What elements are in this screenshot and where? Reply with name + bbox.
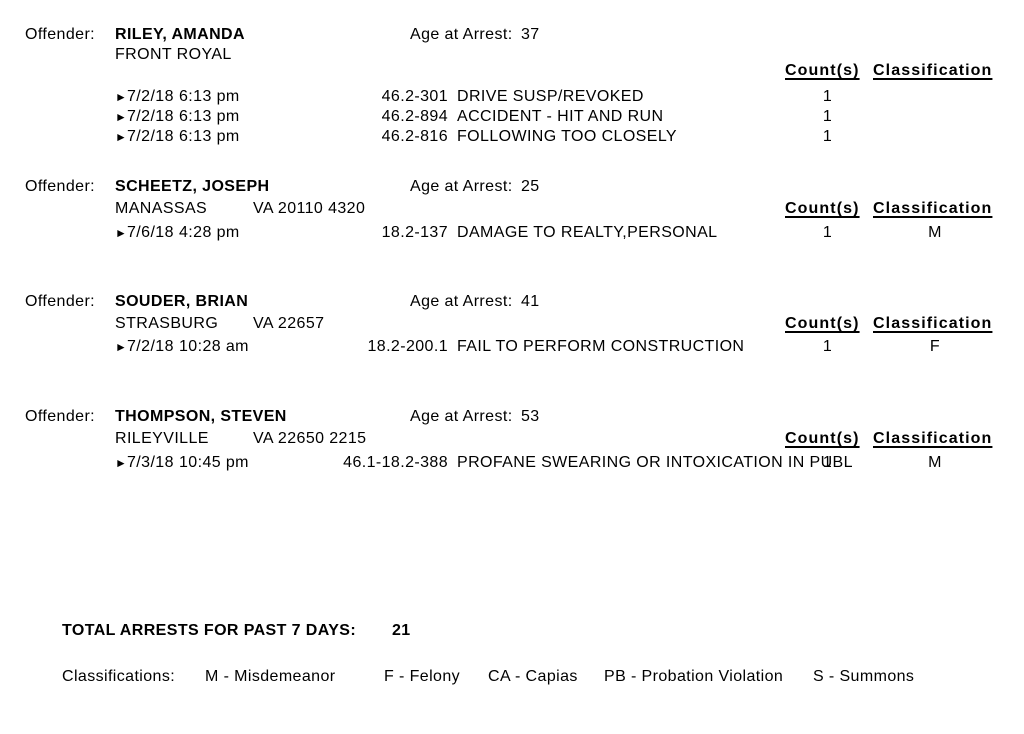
- charge-offense: PROFANE SWEARING OR INTOXICATION IN PUBL: [457, 453, 853, 473]
- offender-city: RILEYVILLE: [115, 429, 209, 449]
- age-at-arrest-label: Age at Arrest:: [410, 25, 513, 45]
- charge-classification: M: [906, 223, 964, 243]
- charge-time: 10:28 am: [179, 337, 249, 357]
- offender-line: Offender: RILEY, AMANDA Age at Arrest: 3…: [0, 25, 1024, 45]
- offender-line: Offender: SOUDER, BRIAN Age at Arrest: 4…: [0, 292, 1024, 312]
- charge-date: 7/2/18: [127, 87, 174, 107]
- charge-count: 1: [799, 107, 856, 127]
- charge-time: 4:28 pm: [179, 223, 240, 243]
- legend-item-felony: F - Felony: [384, 667, 460, 687]
- classification-column-header: Classification: [873, 199, 992, 219]
- offender-line: Offender: THOMPSON, STEVEN Age at Arrest…: [0, 407, 1024, 427]
- offender-state-zip: VA 22657: [253, 314, 324, 334]
- charge-row: ► 7/3/18 10:45 pm 46.1-18.2-388 PROFANE …: [0, 453, 1024, 473]
- charge-count: 1: [799, 453, 856, 473]
- charge-count: 1: [799, 87, 856, 107]
- charge-row: ► 7/2/18 10:28 am 18.2-200.1 FAIL TO PER…: [0, 337, 1024, 357]
- offender-state-zip: VA 22650 2215: [253, 429, 366, 449]
- age-at-arrest-value: 53: [521, 407, 540, 427]
- charge-code: 18.2-137: [300, 223, 448, 243]
- offender-label: Offender:: [25, 177, 95, 197]
- offender-city: MANASSAS: [115, 199, 207, 219]
- charge-code: 46.2-816: [300, 127, 448, 147]
- charge-date: 7/6/18: [127, 223, 174, 243]
- charge-count: 1: [799, 337, 856, 357]
- classification-column-header: Classification: [873, 61, 992, 81]
- classification-column-header: Classification: [873, 314, 992, 334]
- charge-code: 46.2-894: [300, 107, 448, 127]
- address-line: RILEYVILLE VA 22650 2215 Count(s) Classi…: [0, 429, 1024, 449]
- offender-name: RILEY, AMANDA: [115, 25, 245, 45]
- legend-item-probation-violation: PB - Probation Violation: [604, 667, 783, 687]
- offender-name: THOMPSON, STEVEN: [115, 407, 287, 427]
- offender-name: SOUDER, BRIAN: [115, 292, 248, 312]
- charge-bullet-icon: ►: [115, 337, 127, 357]
- legend-item-summons: S - Summons: [813, 667, 914, 687]
- counts-column-header: Count(s): [785, 199, 860, 219]
- charge-classification: F: [906, 337, 964, 357]
- offender-city: STRASBURG: [115, 314, 218, 334]
- charge-offense: DAMAGE TO REALTY,PERSONAL: [457, 223, 717, 243]
- charge-code: 46.1-18.2-388: [300, 453, 448, 473]
- offender-name: SCHEETZ, JOSEPH: [115, 177, 269, 197]
- offender-label: Offender:: [25, 407, 95, 427]
- charge-date: 7/2/18: [127, 337, 174, 357]
- legend-item-capias: CA - Capias: [488, 667, 578, 687]
- charge-bullet-icon: ►: [115, 127, 127, 147]
- age-at-arrest-label: Age at Arrest:: [410, 407, 513, 427]
- charge-count: 1: [799, 127, 856, 147]
- charge-bullet-icon: ►: [115, 223, 127, 243]
- charge-offense: FAIL TO PERFORM CONSTRUCTION: [457, 337, 744, 357]
- charge-row: ► 7/6/18 4:28 pm 18.2-137 DAMAGE TO REAL…: [0, 223, 1024, 243]
- total-arrests-value: 21: [392, 621, 411, 641]
- charge-date: 7/2/18: [127, 127, 174, 147]
- charge-time: 6:13 pm: [179, 87, 240, 107]
- charge-time: 6:13 pm: [179, 127, 240, 147]
- charge-offense: FOLLOWING TOO CLOSELY: [457, 127, 677, 147]
- age-at-arrest-label: Age at Arrest:: [410, 292, 513, 312]
- charge-code: 18.2-200.1: [300, 337, 448, 357]
- charge-date: 7/3/18: [127, 453, 174, 473]
- offender-state-zip: VA 20110 4320: [253, 199, 365, 219]
- counts-column-header: Count(s): [785, 429, 860, 449]
- offender-line: Offender: SCHEETZ, JOSEPH Age at Arrest:…: [0, 177, 1024, 197]
- charge-classification: M: [906, 453, 964, 473]
- age-at-arrest-value: 37: [521, 25, 540, 45]
- charge-time: 10:45 pm: [179, 453, 249, 473]
- charge-offense: DRIVE SUSP/REVOKED: [457, 87, 644, 107]
- charge-time: 6:13 pm: [179, 107, 240, 127]
- charge-code: 46.2-301: [300, 87, 448, 107]
- column-headers: Count(s) Classification: [0, 61, 1024, 81]
- address-line: MANASSAS VA 20110 4320 Count(s) Classifi…: [0, 199, 1024, 219]
- charge-bullet-icon: ►: [115, 107, 127, 127]
- charge-row: ► 7/2/18 6:13 pm 46.2-816 FOLLOWING TOO …: [0, 127, 1024, 147]
- counts-column-header: Count(s): [785, 314, 860, 334]
- charge-offense: ACCIDENT - HIT AND RUN: [457, 107, 663, 127]
- arrest-report-document: Offender: RILEY, AMANDA Age at Arrest: 3…: [0, 0, 1024, 734]
- address-line: STRASBURG VA 22657 Count(s) Classificati…: [0, 314, 1024, 334]
- charge-date: 7/2/18: [127, 107, 174, 127]
- age-at-arrest-label: Age at Arrest:: [410, 177, 513, 197]
- charge-bullet-icon: ►: [115, 453, 127, 473]
- charge-row: ► 7/2/18 6:13 pm 46.2-301 DRIVE SUSP/REV…: [0, 87, 1024, 107]
- classification-column-header: Classification: [873, 429, 992, 449]
- charge-count: 1: [799, 223, 856, 243]
- classifications-legend-label: Classifications:: [62, 667, 175, 687]
- charge-bullet-icon: ►: [115, 87, 127, 107]
- total-arrests-label: TOTAL ARRESTS FOR PAST 7 DAYS:: [62, 621, 356, 641]
- counts-column-header: Count(s): [785, 61, 860, 81]
- legend-item-misdemeanor: M - Misdemeanor: [205, 667, 335, 687]
- offender-label: Offender:: [25, 25, 95, 45]
- age-at-arrest-value: 41: [521, 292, 540, 312]
- offender-label: Offender:: [25, 292, 95, 312]
- charge-row: ► 7/2/18 6:13 pm 46.2-894 ACCIDENT - HIT…: [0, 107, 1024, 127]
- age-at-arrest-value: 25: [521, 177, 540, 197]
